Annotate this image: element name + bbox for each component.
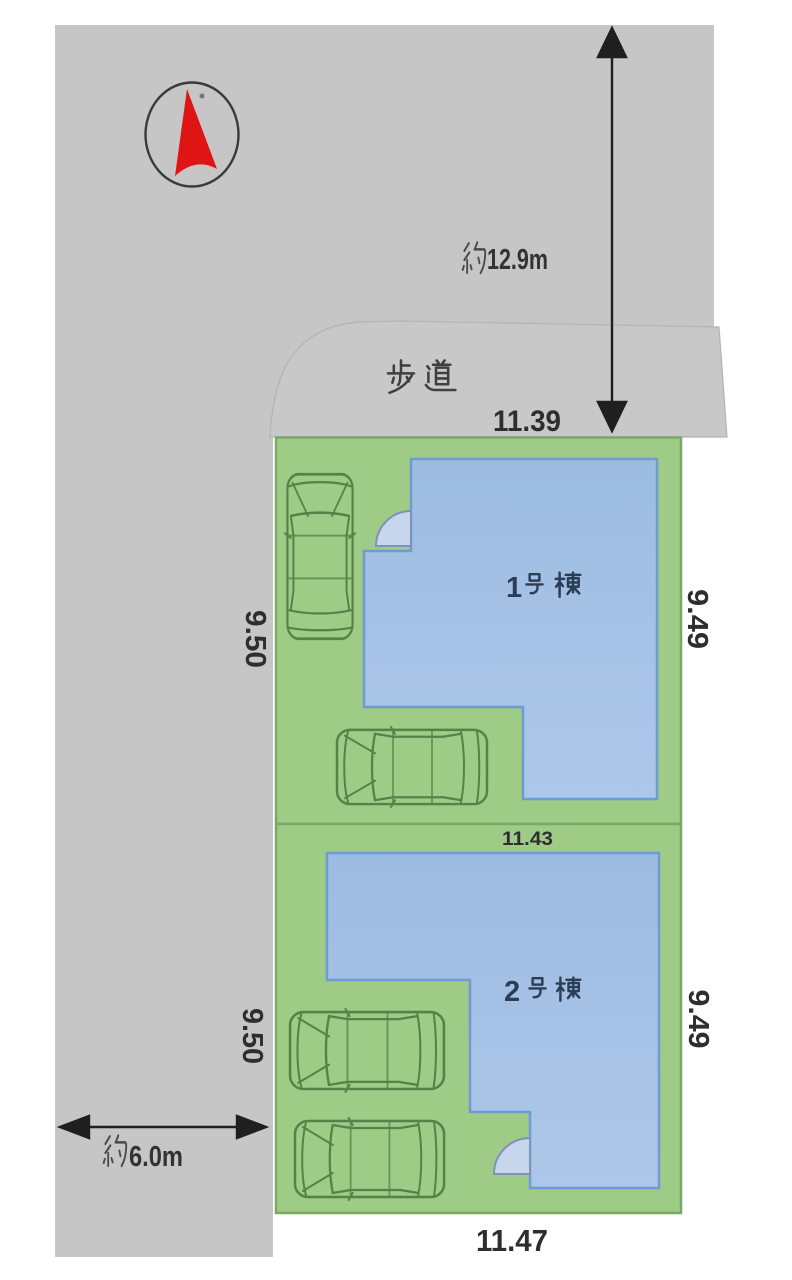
svg-text:11.47: 11.47 xyxy=(476,1223,548,1258)
svg-text:9.50: 9.50 xyxy=(236,1008,268,1064)
svg-text:11.43: 11.43 xyxy=(502,829,553,850)
svg-text:9.49: 9.49 xyxy=(682,990,714,1049)
svg-text:2: 2 xyxy=(504,976,520,1008)
svg-text:9.50: 9.50 xyxy=(239,610,271,668)
svg-text:6.0m: 6.0m xyxy=(129,1141,183,1173)
svg-text:11.39: 11.39 xyxy=(493,405,561,438)
svg-text:1: 1 xyxy=(506,572,522,604)
svg-text:12.9m: 12.9m xyxy=(487,244,548,276)
svg-text:9.49: 9.49 xyxy=(681,589,713,649)
